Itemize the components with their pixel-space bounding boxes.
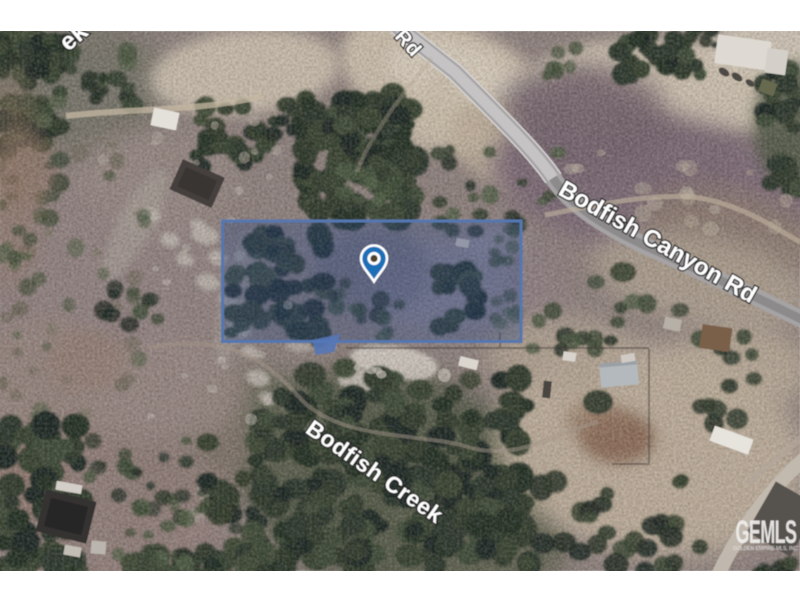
svg-text:GOLDEN EMPIRE MLS, INC.: GOLDEN EMPIRE MLS, INC. xyxy=(733,546,799,552)
